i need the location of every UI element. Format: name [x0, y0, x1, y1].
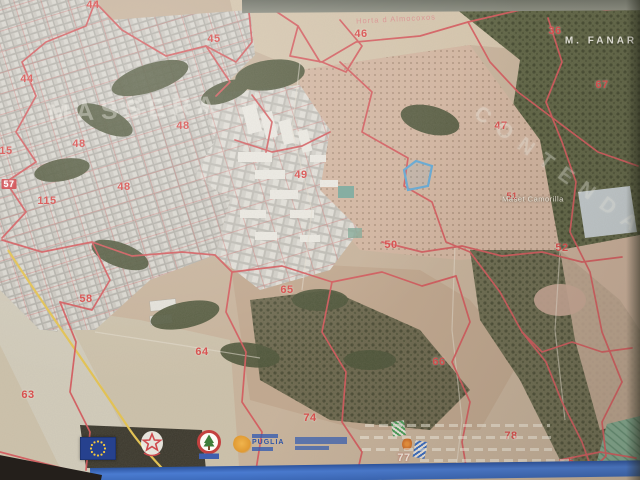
map-photo: 4444454635366747484848491557115515850526… — [0, 0, 640, 480]
photo-grain — [0, 0, 640, 480]
aerial-terrain — [0, 0, 640, 480]
